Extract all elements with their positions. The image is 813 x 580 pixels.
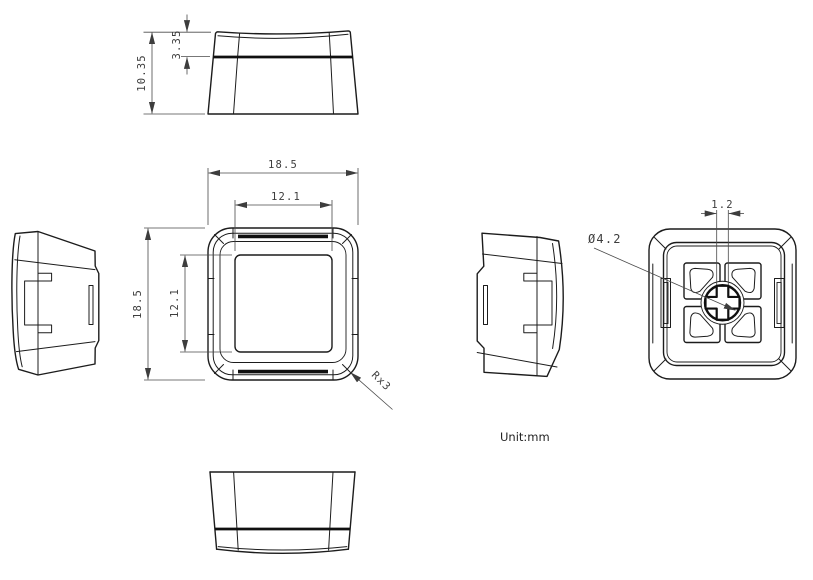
flange-inner-curve	[553, 244, 557, 349]
corner-tick	[779, 359, 791, 371]
dim-top-outer-width-label: 18.5	[268, 159, 298, 171]
dim-cross-slot-width-label: 1.2	[711, 199, 734, 211]
dim-top-bevel-height-label: 3.35	[171, 29, 183, 59]
dim-side-inner-depth-label: 12.1	[169, 288, 181, 318]
back-right-bevel-line	[329, 472, 333, 550]
right-side-view	[477, 233, 563, 376]
back-view	[210, 472, 355, 553]
lower-profile-line	[477, 353, 557, 368]
drawing-canvas: 10.35 3.35 18.5 12.1	[0, 0, 813, 580]
top-view	[208, 228, 358, 380]
top-face-square	[235, 255, 332, 352]
corner-radius-label: Rx3	[369, 369, 393, 393]
dim-side-outer-depth-label: 18.5	[132, 289, 144, 319]
upper-profile-line	[15, 260, 95, 270]
dim-top-inner-width: 12.1	[235, 191, 332, 251]
dim-top-inner-width-label: 12.1	[271, 191, 301, 203]
front-outline	[208, 31, 358, 114]
keycap-technical-drawing: 10.35 3.35 18.5 12.1	[0, 0, 813, 580]
corner-radius-callout: Rx3	[351, 369, 394, 409]
top-outer-ring	[208, 228, 358, 380]
back-left-edge	[210, 472, 217, 549]
left-rib	[661, 279, 671, 328]
upper-profile-line	[483, 254, 563, 264]
side-rib	[89, 286, 93, 325]
dim-side-inner-depth: 12.1	[169, 255, 232, 352]
back-right-edge	[348, 472, 355, 549]
top-third-ring	[220, 242, 346, 363]
stem-diameter-label: Ø4.2	[588, 232, 622, 246]
front-top-inner-curve	[218, 34, 348, 38]
notch-tab	[38, 325, 52, 333]
lower-profile-line	[16, 342, 95, 352]
side-rib	[484, 286, 488, 325]
dim-total-height-label: 10.35	[136, 54, 148, 92]
notch-tab	[38, 273, 52, 281]
side-notch	[537, 281, 552, 325]
left-side-view	[12, 232, 99, 376]
bottom-stem-view	[649, 229, 796, 379]
right-rib	[775, 279, 785, 328]
side-notch	[25, 281, 38, 325]
notch-tab	[524, 325, 537, 333]
dim-top-bevel-height: 3.35	[171, 15, 210, 75]
unit-note: Unit:mm	[500, 430, 550, 444]
corner-tick	[655, 238, 667, 250]
flange-inner-curve	[17, 236, 22, 367]
back-bottom-inner-curve	[218, 547, 347, 550]
leader-line	[594, 248, 735, 310]
corner-tick	[655, 359, 667, 371]
corner-tick	[779, 238, 791, 250]
front-right-bevel-line	[329, 33, 333, 114]
back-left-bevel-line	[234, 472, 239, 550]
front-view	[208, 31, 358, 114]
notch-tab	[524, 273, 537, 281]
front-left-bevel-line	[234, 33, 240, 114]
